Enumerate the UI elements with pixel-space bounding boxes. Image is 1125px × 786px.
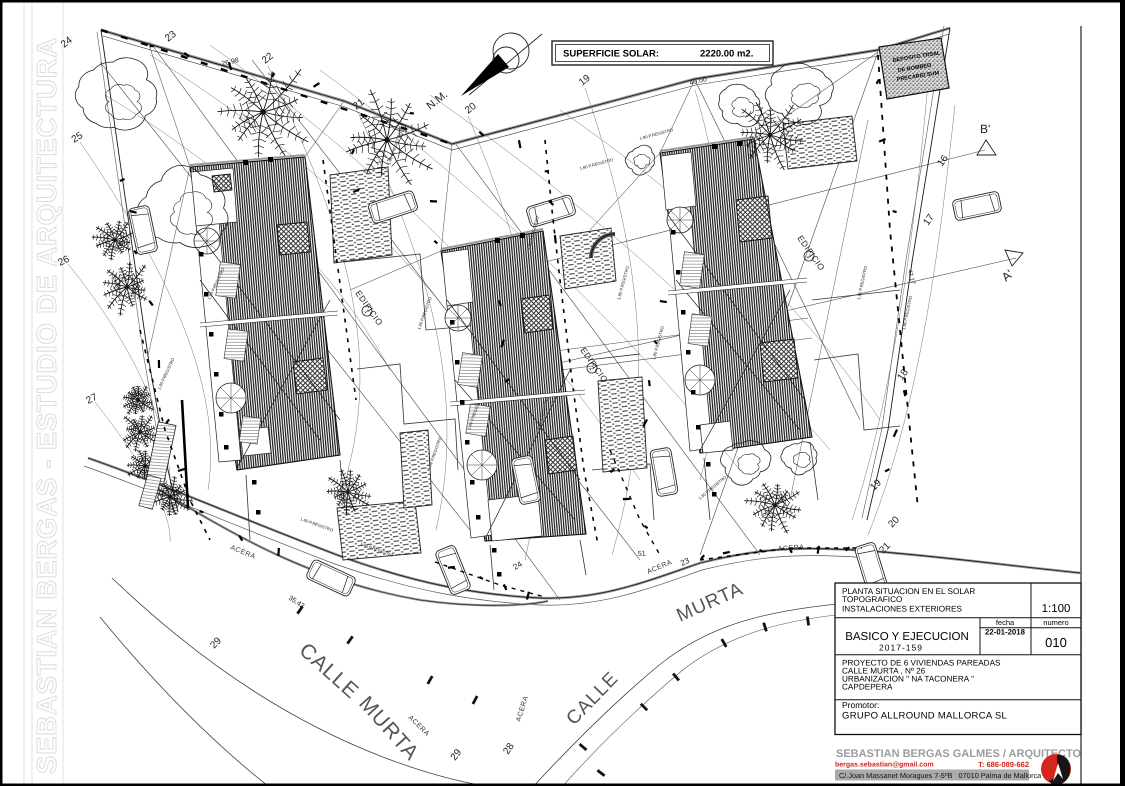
svg-text:bergas.sebastian@gmail.com: bergas.sebastian@gmail.com (835, 761, 934, 769)
svg-text:T: 686-089-662: T: 686-089-662 (978, 760, 1029, 769)
svg-text:numero: numero (1043, 618, 1068, 627)
svg-text:B': B' (980, 122, 990, 136)
svg-text:010: 010 (1045, 635, 1067, 650)
svg-text:2017-159: 2017-159 (879, 643, 923, 653)
svg-text:INSTALACIONES EXTERIORES: INSTALACIONES EXTERIORES (842, 605, 962, 614)
svg-text:SEBASTIAN BERGAS - ESTUDIO D: SEBASTIAN BERGAS - ESTUDIO DE ARQUITECTU… (31, 37, 62, 774)
svg-text:BASICO Y EJECUCION: BASICO Y EJECUCION (845, 631, 969, 643)
svg-text:TOPOGRAFICO: TOPOGRAFICO (842, 595, 902, 604)
svg-text:SEBASTIAN BERGAS GALMES / ARQU: SEBASTIAN BERGAS GALMES / ARQUITECTO (836, 748, 1082, 760)
svg-text:.51: .51 (636, 550, 646, 558)
svg-text:1:100: 1:100 (1042, 603, 1071, 615)
svg-text:SUPERFICIE SOLAR:: SUPERFICIE SOLAR: (563, 49, 659, 60)
svg-text:fecha: fecha (996, 618, 1015, 627)
svg-text:GRUPO ALLROUND MALLORCA SL: GRUPO ALLROUND MALLORCA SL (842, 711, 1007, 722)
svg-text:Promotor:: Promotor: (842, 700, 879, 710)
svg-text:C/.Joan Massanet Moragues 7-5º: C/.Joan Massanet Moragues 7-5ºB 07010 Pa… (839, 771, 1042, 780)
svg-text:CAPDEPERA: CAPDEPERA (842, 683, 893, 692)
svg-text:22-01-2018: 22-01-2018 (985, 628, 1026, 637)
svg-text:2220.00 m2.: 2220.00 m2. (700, 49, 753, 60)
